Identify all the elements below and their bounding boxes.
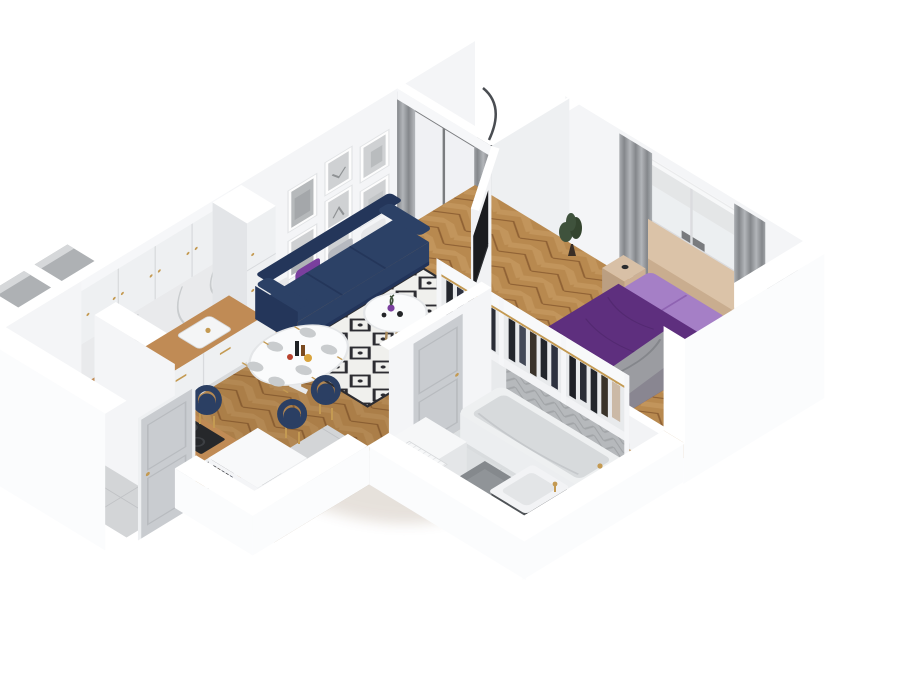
garment — [591, 368, 598, 414]
garment-beige — [612, 381, 620, 422]
fruit — [287, 354, 293, 360]
black-bowl — [397, 311, 403, 317]
floor-plan-render — [0, 0, 920, 700]
tub-faucet — [597, 463, 602, 468]
garment — [569, 355, 576, 399]
fruit-bowl — [304, 354, 312, 362]
garment — [541, 338, 548, 381]
garment — [601, 375, 608, 418]
garment — [509, 318, 516, 362]
black-bowl — [382, 313, 387, 318]
garment — [530, 331, 537, 377]
garment — [551, 344, 558, 390]
bottle — [301, 345, 305, 356]
garment — [519, 325, 526, 366]
kitchen-faucet — [205, 328, 210, 333]
se-step-face — [664, 326, 685, 443]
purple-vase — [387, 304, 394, 311]
garment — [580, 362, 587, 403]
apartment-3d-floor-plan — [0, 0, 920, 700]
bottle — [295, 341, 299, 356]
